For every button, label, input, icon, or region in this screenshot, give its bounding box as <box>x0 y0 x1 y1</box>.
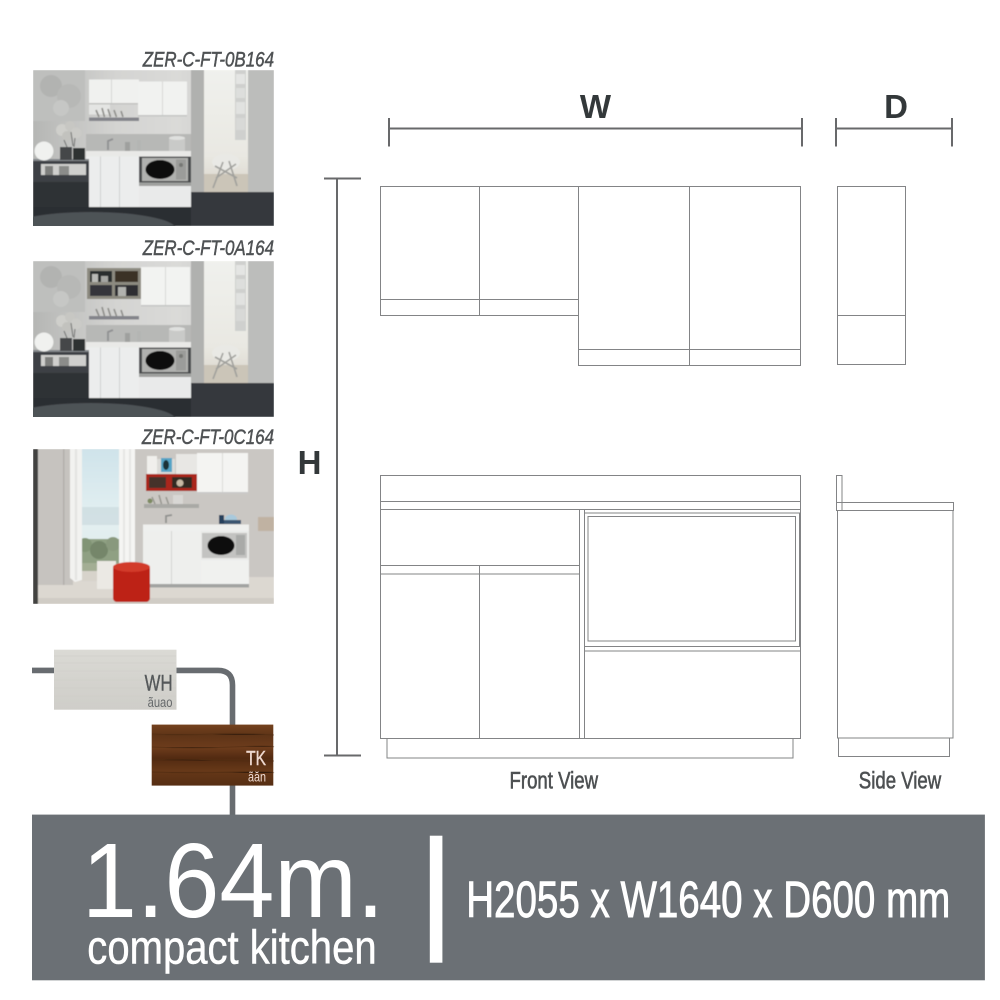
svg-text:Front View: Front View <box>510 767 599 794</box>
svg-text:compact kitchen: compact kitchen <box>87 921 376 974</box>
svg-text:ZER-C-FT-0A164: ZER-C-FT-0A164 <box>142 237 274 260</box>
svg-text:WH: WH <box>145 671 173 696</box>
svg-text:D: D <box>884 88 908 125</box>
svg-text:H2055 x W1640 x D600 mm: H2055 x W1640 x D600 mm <box>466 871 950 929</box>
svg-text:H: H <box>298 444 322 481</box>
svg-text:ãăn: ãăn <box>248 769 266 784</box>
svg-text:ãuao: ãuao <box>148 695 173 710</box>
svg-text:ZER-C-FT-0C164: ZER-C-FT-0C164 <box>141 426 274 449</box>
svg-text:W: W <box>580 88 612 125</box>
svg-text:ZER-C-FT-0B164: ZER-C-FT-0B164 <box>142 49 274 72</box>
svg-text:TK: TK <box>246 747 266 770</box>
svg-text:Side View: Side View <box>859 767 942 794</box>
